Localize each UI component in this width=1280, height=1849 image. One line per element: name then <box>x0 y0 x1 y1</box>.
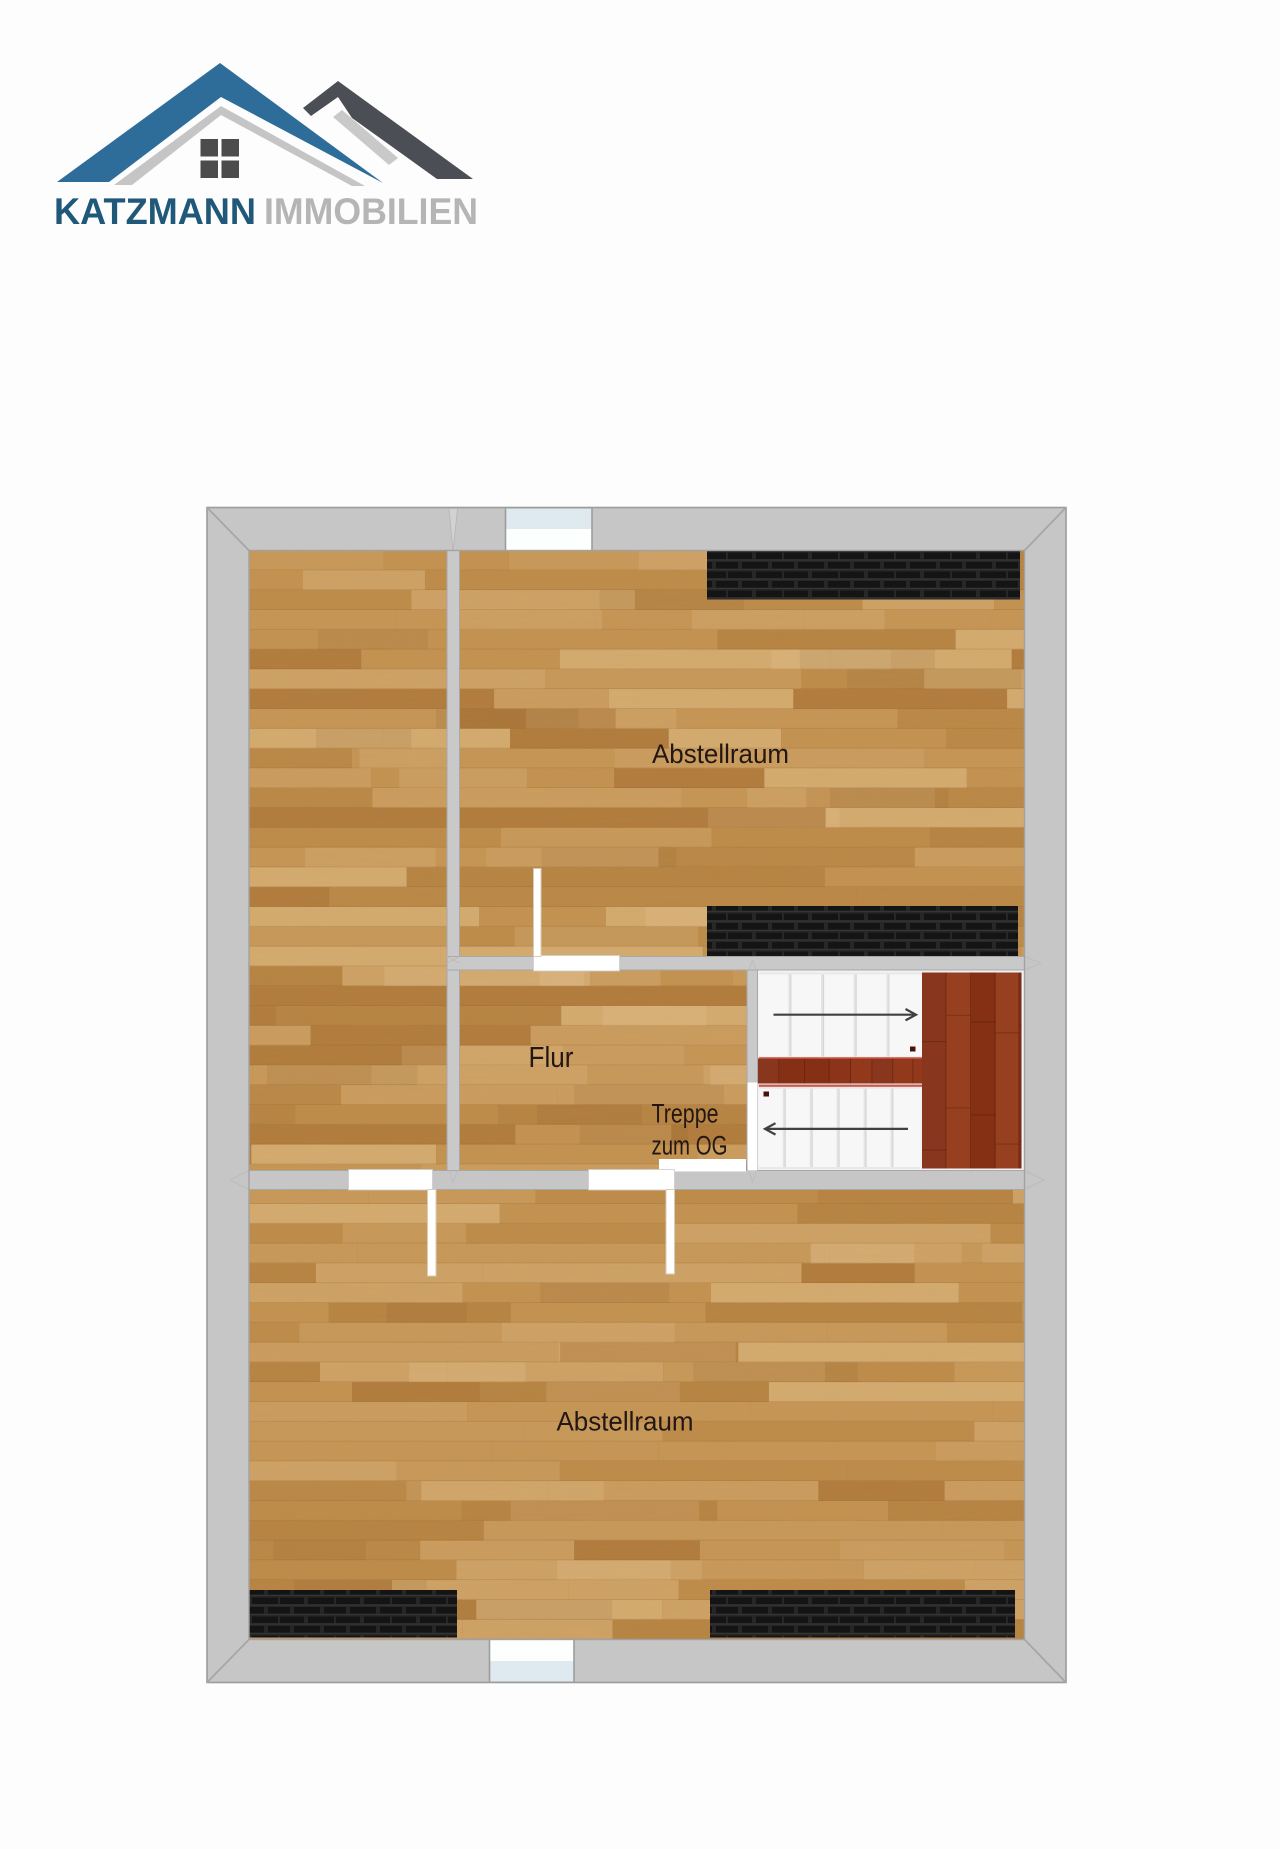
svg-text:IMMOBILIEN: IMMOBILIEN <box>264 191 478 232</box>
svg-text:KATZMANN: KATZMANN <box>54 191 256 232</box>
svg-text:zum OG: zum OG <box>652 1131 728 1161</box>
svg-text:Flur: Flur <box>529 1042 574 1074</box>
svg-text:Abstellraum: Abstellraum <box>557 1407 694 1437</box>
svg-text:Treppe: Treppe <box>652 1099 719 1129</box>
svg-text:Abstellraum: Abstellraum <box>652 739 789 769</box>
